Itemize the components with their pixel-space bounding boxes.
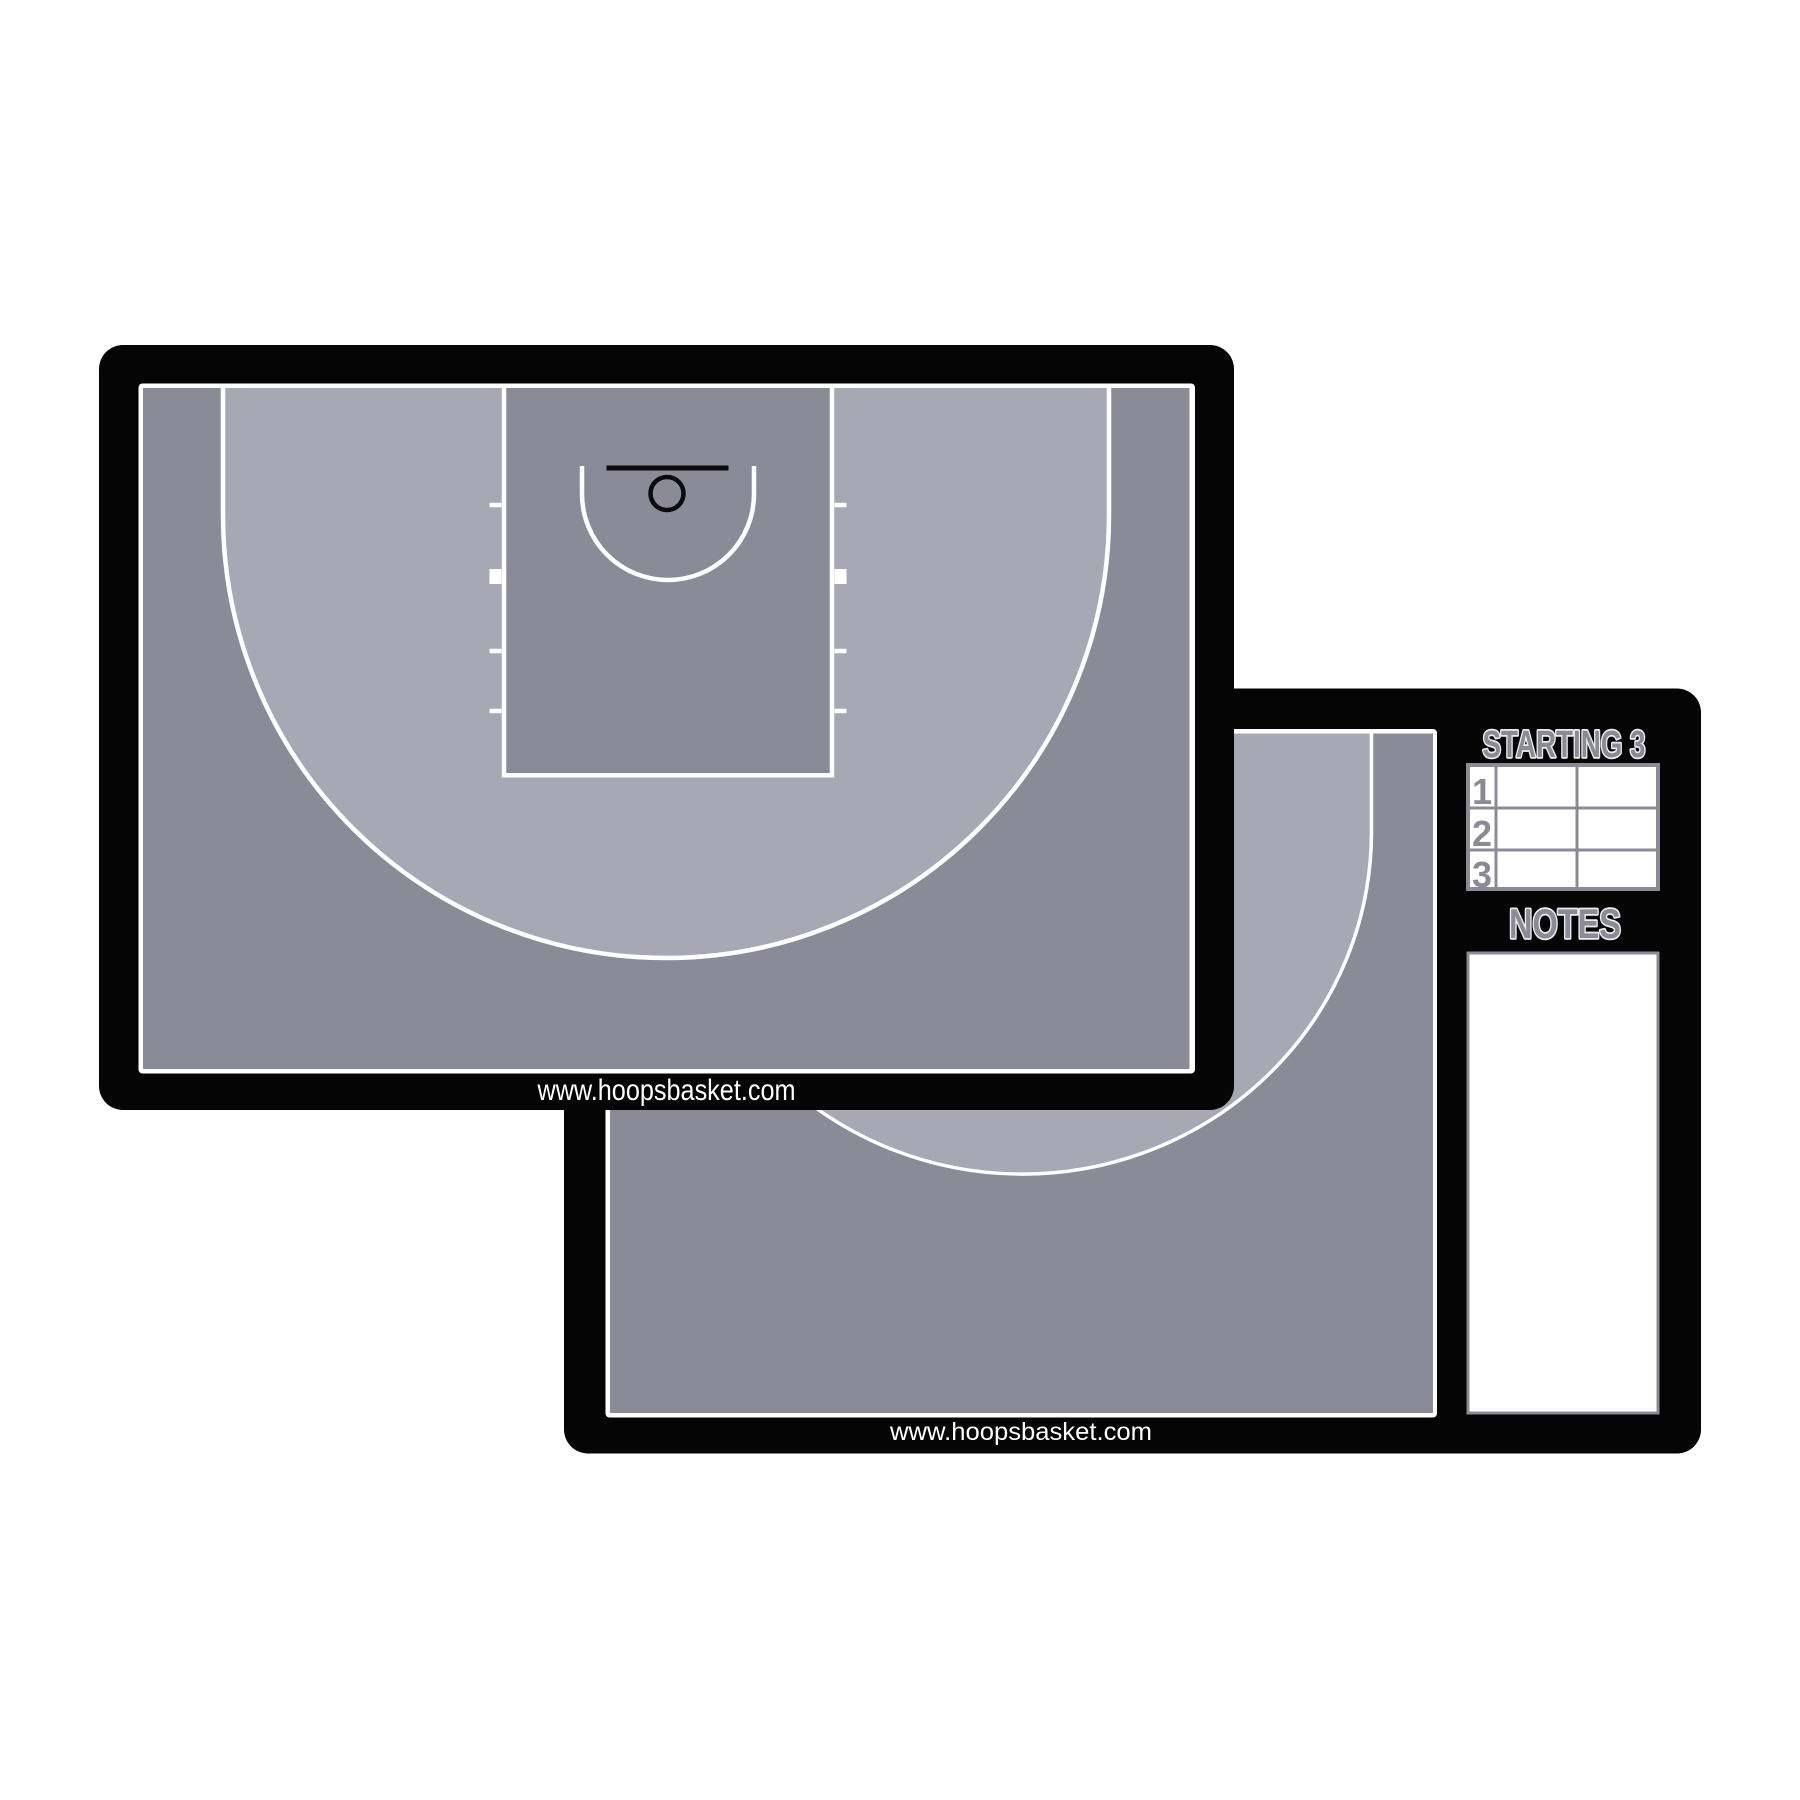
svg-text:NOTES: NOTES — [1509, 900, 1621, 947]
svg-text:1: 1 — [1472, 771, 1492, 812]
svg-text:www.hoopsbasket.com: www.hoopsbasket.com — [537, 1074, 796, 1107]
svg-text:3: 3 — [1472, 854, 1492, 895]
svg-text:2: 2 — [1472, 813, 1492, 854]
svg-text:www.hoopsbasket.com: www.hoopsbasket.com — [889, 1418, 1152, 1446]
svg-text:STARTING 3: STARTING 3 — [1483, 724, 1646, 766]
